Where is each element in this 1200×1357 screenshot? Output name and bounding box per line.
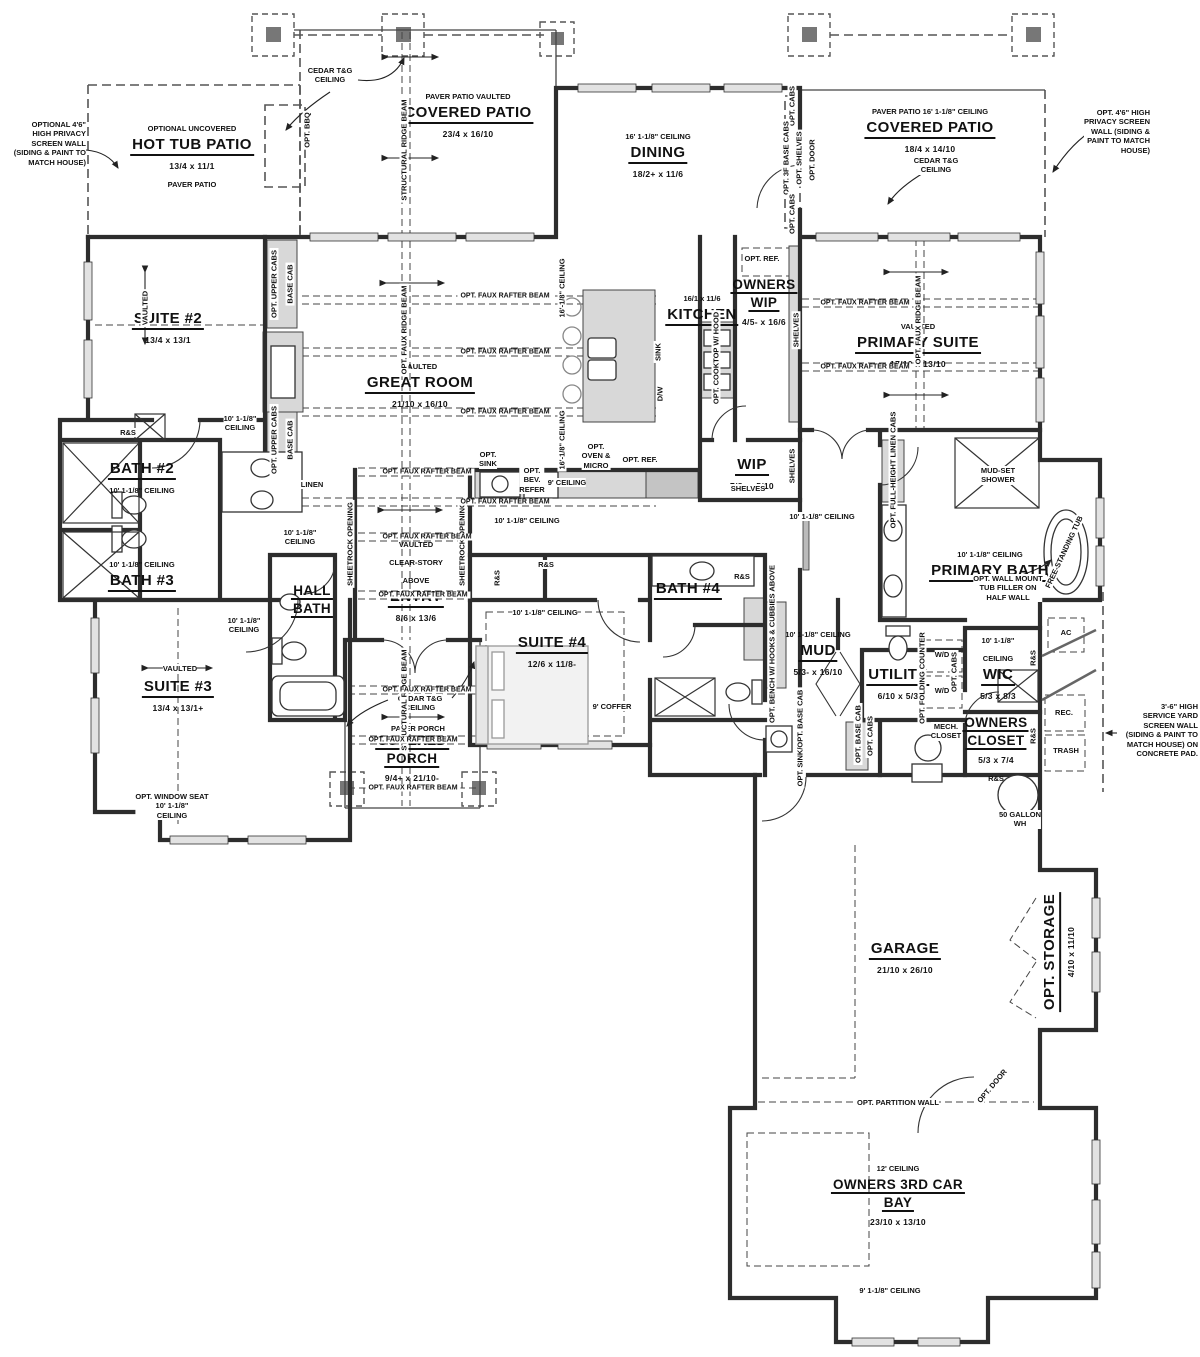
mud-label-text: 10' 1-1/8" CEILING (785, 631, 850, 639)
linen-note: LINEN (301, 480, 324, 489)
opt-oven-micro-note: OPT.OVEN &MICRO (582, 442, 611, 470)
suite-2-label-text: 13/4 x 13/1 (145, 335, 191, 346)
opt-bench-vtext-text: OPT. BENCH W/ HOOKS & CUBBIES ABOVE (768, 565, 777, 723)
kitchen-label: 16/1 x 11/6KITCHEN (665, 288, 738, 326)
owners-wip-label-text: 4/5- x 16/6 (742, 317, 786, 328)
opt-faux-rafter-beam-label: OPT. FAUX RAFTER BEAM (379, 534, 474, 541)
opt-cooktop-vtext-text: OPT. COOKTOP W/ HOOD (712, 312, 721, 404)
opt-shelves-dining-vtext: OPT. SHELVES (795, 129, 804, 186)
ceiling-9-bay-note-text: 9' 1-1/8" CEILING (859, 1286, 920, 1295)
wd-1-note-text: W/D (935, 650, 950, 659)
great-room-label-text: 21/10 x 16/10 (392, 399, 448, 410)
dw-vtext: D/W (656, 385, 665, 404)
rs-suite2-note: R&S (120, 428, 136, 437)
covered-patio-right-label-text: PAVER PATIO 16' 1-1/8" CEILING (872, 108, 988, 116)
coffer-note-text: 9' COFFER (593, 702, 632, 711)
structural-ridge-beam-vtext-text: STRUCTURAL RIDGE BEAM (400, 99, 409, 200)
suite-4-label-text: 12/6 x 11/8- (528, 659, 577, 670)
owners-3rd-car-bay-label-text: 23/10 x 13/10 (870, 1217, 926, 1228)
rs-entry-closet-vtext-text: R&S (493, 570, 502, 586)
service-yard-note-note: 3'-6" HIGHSERVICE YARDSCREEN WALL(SIDING… (1126, 702, 1198, 758)
opt-sink-base-cab-vtext-text: OPT. SINK/OPT. BASE CAB (796, 690, 805, 787)
bath-4-label: BATH #4 (654, 580, 722, 600)
base-cab-2-vtext: BASE CAB (286, 418, 295, 461)
owners-closet-label-text: OWNERS (962, 715, 1029, 732)
opt-upper-cabs-2-vtext-text: OPT. UPPER CABS (270, 406, 279, 474)
opt-faux-ridge-beam-primary-vtext-text: OPT. FAUX RIDGE BEAM (914, 276, 923, 365)
ceiling-primary-hall-note: 10' 1-1/8" CEILING (789, 512, 854, 521)
service-yard-note-note-text: SCREEN WALL (1143, 721, 1198, 730)
owners-closet-label-text: 5/3 x 7/4 (978, 755, 1014, 766)
opt-3f-base-cabs-vtext: OPT. 3F BASE CABS (782, 119, 791, 197)
privacy-note-right-note-text: OPT. 4'6" HIGH (1097, 108, 1150, 117)
ceiling-hall-1-note-text: 10' 1-1/8" (284, 528, 317, 537)
opt-linen-cabs-vtext: OPT. FULL-HEIGHT LINEN CABS (889, 410, 898, 531)
opt-partition-note-text: OPT. PARTITION WALL (857, 1098, 939, 1107)
opt-oven-micro-note-text: OVEN & (582, 451, 611, 460)
privacy-note-right-note: OPT. 4'6" HIGHPRIVACY SCREENWALL (SIDING… (1084, 108, 1150, 155)
entry-label-text: ABOVE (403, 577, 430, 585)
ceiling-primary-hall-note-text: 10' 1-1/8" CEILING (789, 512, 854, 521)
tub-filler-note-note-text: HALF WALL (986, 593, 1029, 602)
utility-label-text: 6/10 x 5/3 (878, 691, 919, 702)
wic-label-text: CEILING (983, 655, 1013, 663)
rs-entry-closet-vtext: R&S (493, 568, 502, 588)
vaulted-suite2-vtext: VAULTED (141, 289, 150, 327)
opt-sink-note-text: OPT. (480, 450, 497, 459)
opt-bev-refer-note-text: OPT. (524, 466, 541, 475)
sheetrock-opening-l-vtext-text: SHEETROCK OPENING (346, 502, 355, 586)
mud-set-shower-note-text: SHOWER (981, 475, 1015, 484)
window-seat-note-text: OPT. WINDOW SEAT (135, 792, 208, 801)
shelves-owners-wip-vtext: SHELVES (792, 311, 801, 349)
cedar-center-note: CEDAR T&GCEILING (308, 66, 353, 85)
rs-closet-2-note: R&S (734, 572, 750, 581)
opt-folding-counter-vtext-text: OPT. FOLDING COUNTER (918, 632, 927, 724)
opt-bench-vtext: OPT. BENCH W/ HOOKS & CUBBIES ABOVE (768, 563, 777, 725)
ceiling-suite4-note: 10' 1-1/8" CEILING (512, 608, 577, 617)
entry-label: VAULTEDCLEAR-STORYABOVEENTRY8/6 x 13/6 (388, 534, 444, 625)
opt-cabs-utility-vtext-text: OPT. CABS (950, 652, 959, 692)
wic-label: 10' 1-1/8"CEILINGWIC5/3 x 8/3 (980, 630, 1016, 704)
covered-porch-label-text: PORCH (385, 751, 440, 768)
opt-ref-kitchen-note-text: OPT. REF. (622, 455, 657, 464)
opt-oven-micro-note-text: OPT. (588, 442, 605, 451)
rec-note-text: REC. (1055, 708, 1073, 717)
trash-note: TRASH (1053, 746, 1079, 755)
suite-3-label-text: 13/4 x 13/1+ (152, 703, 203, 714)
dining-label-text: DINING (629, 145, 688, 164)
opt-faux-rafter-beam-label: OPT. FAUX RAFTER BEAM (457, 293, 552, 300)
opt-door-diag-vtext: OPT. DOOR (974, 1066, 1010, 1106)
mech-closet-note-text: CLOSET (931, 731, 961, 740)
opt-upper-cabs-2-vtext: OPT. UPPER CABS (270, 404, 279, 476)
wd-1-note: W/D (935, 650, 950, 659)
bath-3-label: 10' 1-1/8" CEILINGBATH #3 (108, 554, 176, 592)
shelves-wip-v-vtext-text: SHELVES (788, 449, 797, 483)
rs-owners-closet-vtext: R&S (1029, 726, 1038, 746)
opt-sink-note-text: SINK (479, 459, 497, 468)
opt-faux-rafter-beam-label: OPT. FAUX RAFTER BEAM (817, 300, 912, 307)
nine-ceiling-note-text: 9' CEILING (548, 478, 586, 487)
service-yard-note-note-text: SERVICE YARD (1143, 711, 1198, 720)
cedar-right-note: CEDAR T&GCEILING (914, 156, 959, 175)
opt-cabs-utility-vtext: OPT. CABS (950, 650, 959, 694)
opt-cabs-dining-bot-vtext: OPT. CABS (788, 192, 797, 236)
opt-faux-ridge-beam-vtext: OPT. FAUX RIDGE BEAM (400, 284, 409, 377)
opt-ref-kitchen-note: OPT. REF. (622, 455, 657, 464)
primary-bath-label-text: 10' 1-1/8" CEILING (957, 551, 1022, 559)
bath-3-label-text: 10' 1-1/8" CEILING (109, 561, 174, 569)
mech-closet-note-text: MECH. (934, 722, 958, 731)
opt-faux-ridge-beam-primary-vtext: OPT. FAUX RIDGE BEAM (914, 274, 923, 367)
garage-label-text: GARAGE (869, 941, 941, 960)
opt-faux-rafter-beam-label: OPT. FAUX RAFTER BEAM (457, 349, 552, 356)
window-seat-note-text: CEILING (157, 811, 187, 820)
opt-folding-counter-vtext: OPT. FOLDING COUNTER (918, 630, 927, 726)
opt-upper-cabs-1-vtext: OPT. UPPER CABS (270, 248, 279, 320)
wip-label-text: WIP (735, 457, 769, 476)
owners-3rd-car-bay-label-text: BAY (882, 1195, 914, 1212)
opt-faux-rafter-beam-label: OPT. FAUX RAFTER BEAM (379, 687, 474, 694)
shelves-wip-v-vtext: SHELVES (788, 447, 797, 485)
ceiling-hall-2-note-text: CEILING (229, 625, 259, 634)
ceiling-suite4-note-text: 10' 1-1/8" CEILING (512, 608, 577, 617)
ceiling-suite2-hall-note-text: CEILING (225, 423, 255, 432)
opt-ref-wip-note-text: OPT. REF. (744, 254, 779, 263)
shelves-wip-note: SHELVES (731, 484, 765, 493)
shelves-owners-wip-vtext-text: SHELVES (792, 313, 801, 347)
owners-closet-label-text: R&S (988, 775, 1004, 783)
base-cab-2-vtext-text: BASE CAB (286, 420, 295, 459)
sink-island-vtext-text: SINK (654, 343, 663, 361)
cedar-right-note-text: CEILING (921, 165, 951, 174)
cedar-center-note-text: CEILING (315, 75, 345, 84)
privacy-note-right-note-text: PRIVACY SCREEN (1084, 117, 1150, 126)
ceiling-hall-2-note-text: 10' 1-1/8" (228, 616, 261, 625)
opt-base-cab-hall-vtext-text: OPT. BASE CAB (854, 705, 863, 763)
opt-faux-ridge-beam-vtext-text: OPT. FAUX RIDGE BEAM (400, 286, 409, 375)
opt-linen-cabs-vtext-text: OPT. FULL-HEIGHT LINEN CABS (889, 412, 898, 529)
opt-faux-rafter-beam-label: OPT. FAUX RAFTER BEAM (375, 592, 470, 599)
mud-label: 10' 1-1/8" CEILINGMUD5/3- x 16/10 (785, 624, 850, 680)
hot-tub-patio-label: OPTIONAL UNCOVEREDHOT TUB PATIO13/4 x 11… (130, 118, 254, 192)
opt-upper-cabs-1-vtext-text: OPT. UPPER CABS (270, 250, 279, 318)
sheetrock-opening-r-vtext: SHEETROCK OPENING (458, 500, 467, 588)
opt-ref-wip-note: OPT. REF. (744, 254, 779, 263)
privacy-note-right-note-text: HOUSE) (1121, 146, 1150, 155)
opt-faux-rafter-beam-label: OPT. FAUX RAFTER BEAM (457, 409, 552, 416)
ceiling-kitchen-hall-note: 10' 1-1/8" CEILING (494, 516, 559, 525)
ceiling-16-v1-vtext-text: 16'-1/8" CEILING (558, 258, 567, 317)
sheetrock-opening-r-vtext-text: SHEETROCK OPENING (458, 502, 467, 586)
owners-wip-label-text: OWNERS (730, 277, 797, 294)
rs-wic-vtext-text: R&S (1029, 650, 1038, 666)
nine-ceiling-note: 9' CEILING (548, 478, 586, 487)
suite-4-label-text: SUITE #4 (516, 635, 588, 654)
owners-closet-label-text: CLOSET (965, 733, 1026, 750)
mud-set-shower-note: MUD-SETSHOWER (981, 466, 1015, 485)
mud-set-shower-note-text: MUD-SET (981, 466, 1015, 475)
wd-2-note-text: W/D (935, 686, 950, 695)
opt-door-dining-vtext: OPT. DOOR (808, 137, 817, 182)
bath-2-label-text: 10' 1-1/8" CEILING (109, 487, 174, 495)
opt-bbq-vtext: OPT. BBQ (303, 110, 312, 149)
ceiling-hall-1-note-text: CEILING (285, 537, 315, 546)
window-seat-note-text: 10' 1-1/8" (156, 801, 189, 810)
floor-plan-page: OPTIONAL UNCOVEREDHOT TUB PATIO13/4 x 11… (0, 0, 1200, 1357)
mud-label-text: 5/3- x 16/10 (794, 667, 843, 678)
entry-label-text: CLEAR-STORY (389, 559, 443, 567)
opt-partition-note: OPT. PARTITION WALL (857, 1098, 939, 1107)
opt-3f-base-cabs-vtext-text: OPT. 3F BASE CABS (782, 121, 791, 195)
ceiling-16-v2-vtext-text: 16'-1/8" CEILING (558, 410, 567, 469)
hot-tub-patio-label-text: 13/4 x 11/1 (169, 161, 214, 172)
owners-wip-label-text: WIP (749, 295, 780, 312)
hot-tub-patio-label-text: OPTIONAL UNCOVERED (148, 125, 237, 133)
structural-ridge-beam-porch-vtext-text: STRUCTURAL RIDGE BEAM (400, 649, 409, 750)
opt-bbq-vtext-text: OPT. BBQ (303, 112, 312, 147)
rs-closet-1-note: R&S (538, 560, 554, 569)
dining-label: 16' 1-1/8" CEILINGDINING18/2+ x 11/6 (625, 126, 690, 182)
ceiling-suite2-hall-note-text: 10' 1-1/8" (224, 414, 257, 423)
kitchen-label-text: 16/1 x 11/6 (683, 295, 720, 303)
opt-oven-micro-note-text: MICRO (583, 461, 608, 470)
suite-4-label: SUITE #412/6 x 11/8- (516, 634, 588, 672)
hall-bath-label-text: HALL (291, 583, 333, 600)
opt-faux-rafter-beam-label: OPT. FAUX RAFTER BEAM (817, 364, 912, 371)
owners-3rd-car-bay-label: 12' CEILINGOWNERS 3RD CARBAY23/10 x 13/1… (831, 1158, 965, 1230)
opt-sink-base-cab-vtext: OPT. SINK/OPT. BASE CAB (796, 688, 805, 789)
opt-door-diag-vtext-text: OPT. DOOR (975, 1067, 1008, 1104)
wd-2-note: W/D (935, 686, 950, 695)
rs-closet-1-note-text: R&S (538, 560, 554, 569)
wh-50-note-text: WH (1014, 819, 1027, 828)
suite-3-label: SUITE #313/4 x 13/1+ (142, 678, 214, 716)
coffer-note: 9' COFFER (593, 702, 632, 711)
tub-filler-note-note-text: TUB FILLER ON (979, 583, 1036, 592)
entry-label-text: 8/6 x 13/6 (396, 613, 437, 624)
dining-label-text: 18/2+ x 11/6 (633, 169, 684, 180)
opt-cabs-dining-bot-vtext-text: OPT. CABS (788, 194, 797, 234)
cedar-right-note-text: CEDAR T&G (914, 156, 959, 165)
wic-label-text: WIC (981, 667, 1015, 686)
vaulted-suite2-vtext-text: VAULTED (141, 291, 150, 325)
owners-wip-label: OWNERSWIP4/5- x 16/6 (730, 276, 797, 330)
ceiling-16-v1-vtext: 16'-1/8" CEILING (558, 256, 567, 319)
hall-bath-label-text: BATH (291, 601, 333, 618)
ceiling-9-bay-note: 9' 1-1/8" CEILING (859, 1286, 920, 1295)
ceiling-hall-2-note: 10' 1-1/8"CEILING (228, 616, 261, 635)
great-room-label: VAULTEDGREAT ROOM21/10 x 16/10 (365, 356, 475, 412)
suite-3-label-text: SUITE #3 (142, 679, 214, 698)
dw-vtext-text: D/W (656, 387, 665, 402)
cedar-porch-note-text: CEILING (405, 703, 435, 712)
opt-storage-label-text: OPT. STORAGE (1042, 892, 1061, 1012)
privacy-note-left-note-text: MATCH HOUSE) (28, 158, 86, 167)
entry-label-text: VAULTED (399, 541, 433, 549)
privacy-note-left-note-text: OPTIONAL 4'6" (32, 120, 86, 129)
owners-closet-label: OWNERSCLOSET5/3 x 7/4R&S (962, 714, 1029, 786)
opt-cabs-hall-vtext: OPT. CABS (866, 714, 875, 758)
hall-bath-label: HALLBATH (291, 582, 333, 618)
covered-patio-center-label-text: PAVER PATIO VAULTED (425, 93, 510, 101)
wh-50-note: 50 GALLONWH (999, 810, 1041, 829)
rs-owners-closet-vtext-text: R&S (1029, 728, 1038, 744)
tub-filler-note-note: OPT. WALL MOUNTTUB FILLER ONHALF WALL (973, 574, 1042, 602)
ceiling-suite2-hall-note: 10' 1-1/8"CEILING (224, 414, 257, 433)
rs-suite2-note-text: R&S (120, 428, 136, 437)
opt-shelves-dining-vtext-text: OPT. SHELVES (795, 131, 804, 184)
opt-sink-note: OPT.SINK (479, 450, 497, 469)
kitchen-label-text: KITCHEN (665, 307, 738, 326)
sink-island-vtext: SINK (654, 341, 663, 363)
opt-faux-rafter-beam-label: OPT. FAUX RAFTER BEAM (365, 737, 460, 744)
opt-bev-refer-note-text: BEV. (524, 475, 541, 484)
rs-wic-vtext: R&S (1029, 648, 1038, 668)
rec-note: REC. (1055, 708, 1073, 717)
opt-bev-refer-note-text: REFER (519, 485, 544, 494)
wh-50-note-text: 50 GALLON (999, 810, 1041, 819)
privacy-note-left-note: OPTIONAL 4'6"HIGH PRIVACYSCREEN WALL(SID… (14, 120, 86, 167)
cedar-center-note-text: CEDAR T&G (308, 66, 353, 75)
label-layer: OPTIONAL UNCOVEREDHOT TUB PATIO13/4 x 11… (0, 0, 1200, 1357)
trash-note-text: TRASH (1053, 746, 1079, 755)
vaulted-suite3-note-text: VAULTED (163, 664, 197, 673)
base-cab-1-vtext-text: BASE CAB (286, 264, 295, 303)
service-yard-note-note-text: (SIDING & PAINT TO (1126, 730, 1198, 739)
linen-note-text: LINEN (301, 480, 324, 489)
ceiling-kitchen-hall-note-text: 10' 1-1/8" CEILING (494, 516, 559, 525)
privacy-note-right-note-text: PAINT TO MATCH (1087, 136, 1150, 145)
mud-label-text: MUD (798, 643, 837, 662)
window-seat-note: OPT. WINDOW SEAT10' 1-1/8"CEILING (135, 792, 208, 820)
covered-patio-right-label-text: 18/4 x 14/10 (905, 144, 956, 155)
covered-patio-center-label-text: 23/4 x 16/10 (443, 129, 494, 140)
owners-3rd-car-bay-label-text: OWNERS 3RD CAR (831, 1177, 965, 1194)
opt-faux-rafter-beam-label: OPT. FAUX RAFTER BEAM (379, 469, 474, 476)
vaulted-suite3-note: VAULTED (163, 664, 197, 673)
covered-porch-label-text: 9/4+ x 21/10- (385, 773, 439, 784)
dining-label-text: 16' 1-1/8" CEILING (625, 133, 690, 141)
opt-base-cab-hall-vtext: OPT. BASE CAB (854, 703, 863, 765)
opt-door-dining-vtext-text: OPT. DOOR (808, 139, 817, 180)
privacy-note-left-note-text: SCREEN WALL (31, 139, 86, 148)
bath-4-label-text: BATH #4 (654, 581, 722, 600)
bath-2-label: BATH #210' 1-1/8" CEILING (108, 460, 176, 498)
opt-faux-rafter-beam-label: OPT. FAUX RAFTER BEAM (365, 785, 460, 792)
structural-ridge-beam-vtext: STRUCTURAL RIDGE BEAM (400, 97, 409, 202)
bath-2-label-text: BATH #2 (108, 461, 176, 480)
opt-cabs-hall-vtext-text: OPT. CABS (866, 716, 875, 756)
mech-closet-note: MECH.CLOSET (931, 722, 961, 741)
ceiling-16-v2-vtext: 16'-1/8" CEILING (558, 408, 567, 471)
opt-cooktop-vtext: OPT. COOKTOP W/ HOOD (712, 310, 721, 406)
wic-label-text: 5/3 x 8/3 (980, 691, 1016, 702)
covered-patio-center-label-text: COVERED PATIO (402, 105, 533, 124)
opt-storage-label: OPT. STORAGE4/10 x 11/10 (1041, 892, 1079, 1012)
garage-label: GARAGE21/10 x 26/10 (869, 940, 941, 978)
bath-3-label-text: BATH #3 (108, 573, 176, 592)
base-cab-1-vtext: BASE CAB (286, 262, 295, 305)
covered-patio-right-label: PAVER PATIO 16' 1-1/8" CEILINGCOVERED PA… (864, 101, 995, 157)
hot-tub-patio-label-text: HOT TUB PATIO (130, 137, 254, 156)
ac-note-text: AC (1061, 628, 1072, 637)
hot-tub-patio-label-text: PAVER PATIO (168, 181, 217, 189)
opt-storage-label-text: 4/10 x 11/10 (1066, 927, 1077, 977)
covered-patio-right-label-text: COVERED PATIO (864, 120, 995, 139)
opt-bev-refer-note: OPT.BEV.REFER (519, 466, 544, 494)
owners-3rd-car-bay-label-text: 12' CEILING (877, 1165, 920, 1173)
garage-label-text: 21/10 x 26/10 (877, 965, 933, 976)
privacy-note-left-note-text: (SIDING & PAINT TO (14, 148, 86, 157)
privacy-note-right-note-text: WALL (SIDING & (1091, 127, 1150, 136)
service-yard-note-note-text: MATCH HOUSE) ON (1127, 740, 1198, 749)
rs-closet-2-note-text: R&S (734, 572, 750, 581)
sheetrock-opening-l-vtext: SHEETROCK OPENING (346, 500, 355, 588)
ac-note: AC (1061, 628, 1072, 637)
ceiling-hall-1-note: 10' 1-1/8"CEILING (284, 528, 317, 547)
privacy-note-left-note-text: HIGH PRIVACY (32, 129, 86, 138)
tub-filler-note-note-text: OPT. WALL MOUNT (973, 574, 1042, 583)
opt-faux-rafter-beam-label: OPT. FAUX RAFTER BEAM (457, 499, 552, 506)
covered-patio-center-label: PAVER PATIO VAULTEDCOVERED PATIO23/4 x 1… (402, 86, 533, 142)
service-yard-note-note-text: CONCRETE PAD. (1136, 749, 1198, 758)
wic-label-text: 10' 1-1/8" (982, 637, 1015, 645)
shelves-wip-note-text: SHELVES (731, 484, 765, 493)
great-room-label-text: GREAT ROOM (365, 375, 475, 394)
service-yard-note-note-text: 3'-6" HIGH (1161, 702, 1198, 711)
